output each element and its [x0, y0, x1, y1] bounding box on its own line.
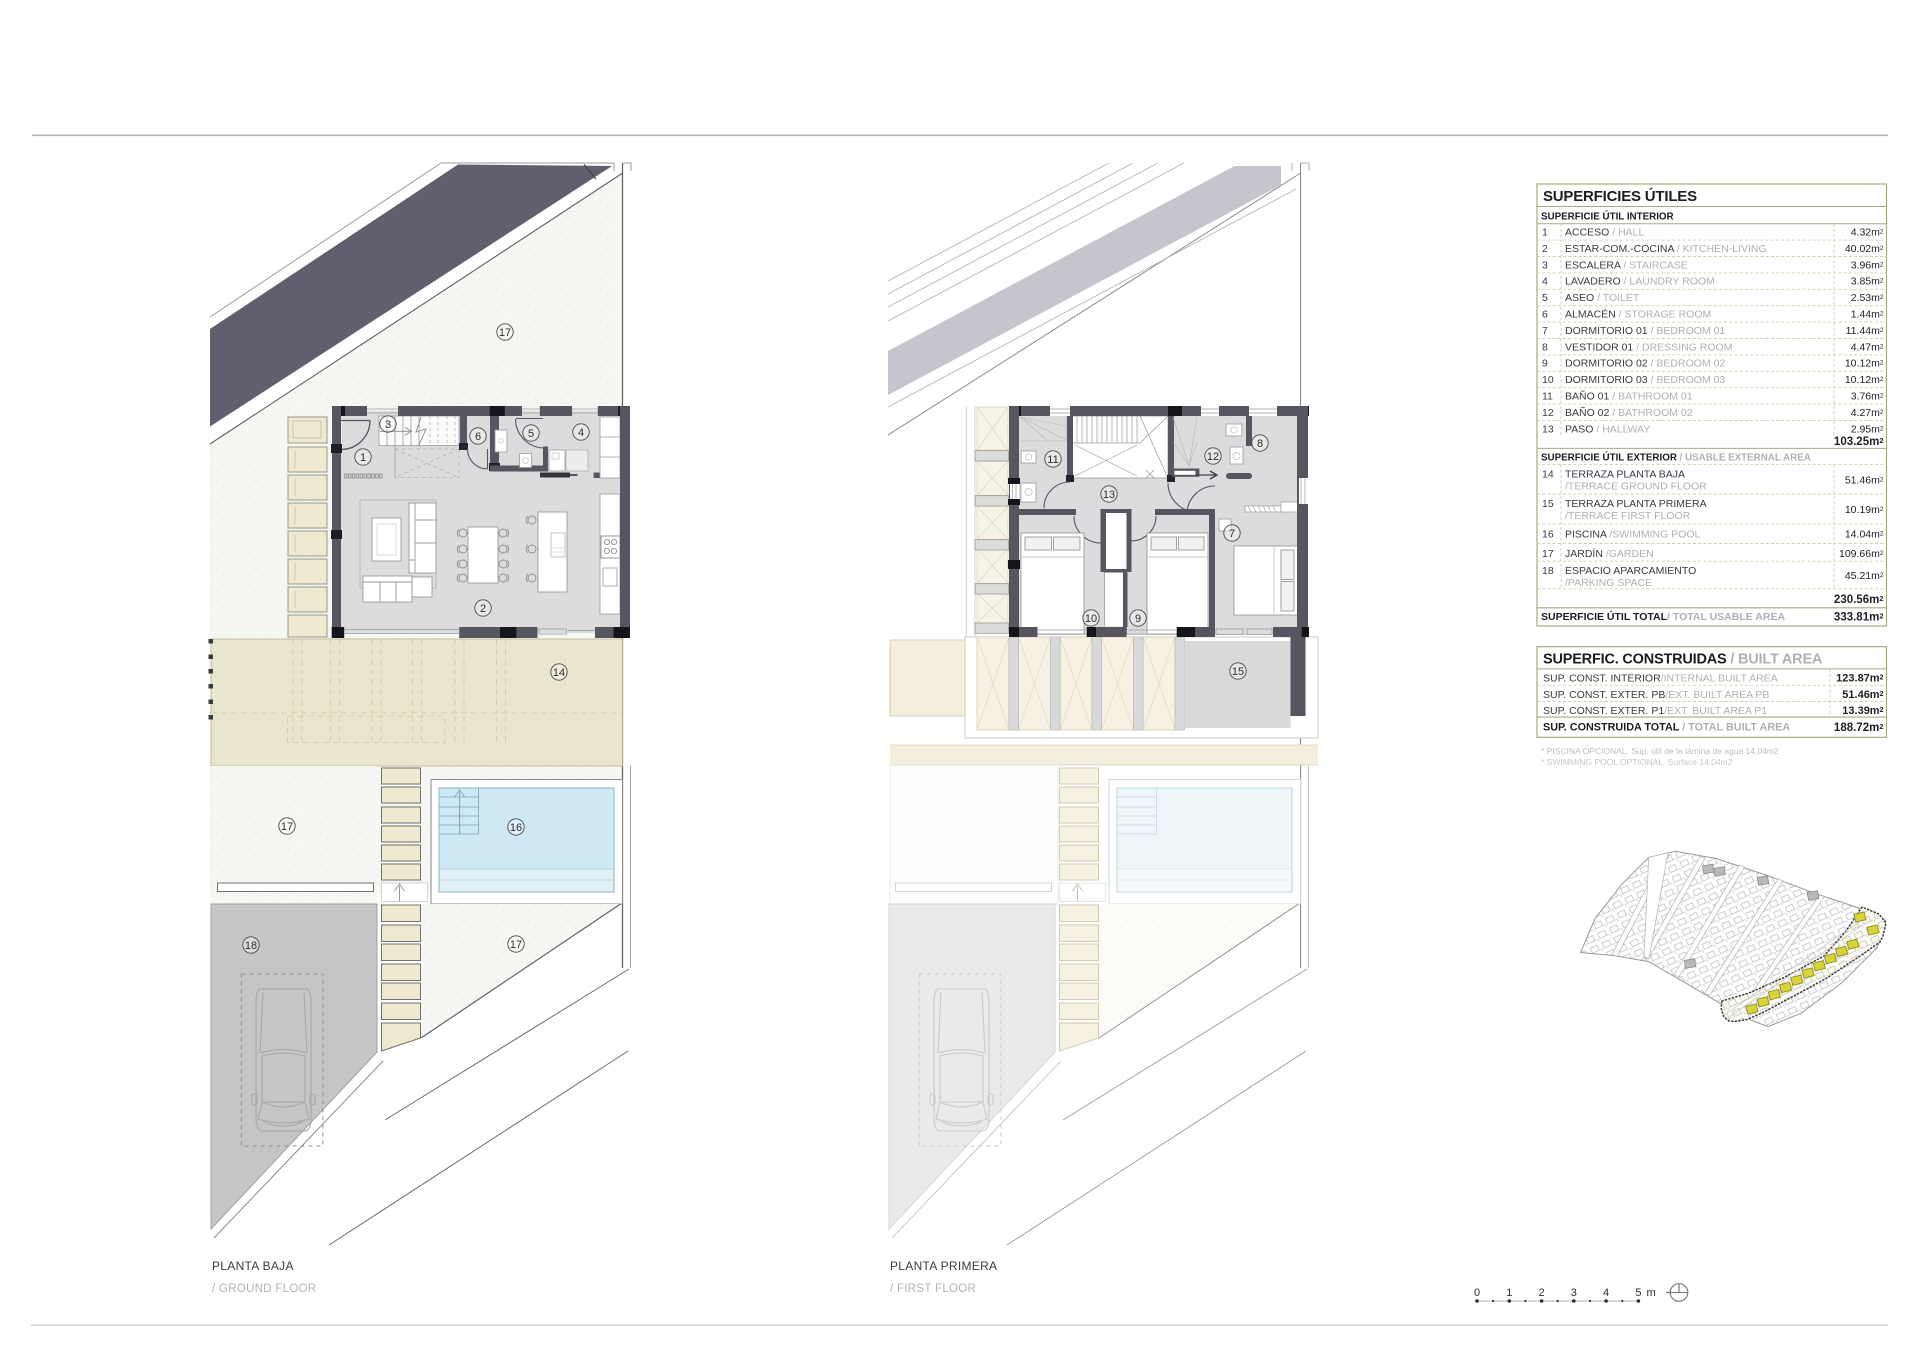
svg-text:ASEO / TOILET: ASEO / TOILET: [1565, 292, 1640, 304]
svg-text:7: 7: [1542, 325, 1548, 337]
svg-text:5: 5: [1542, 292, 1548, 304]
svg-text:4.47m2: 4.47m2: [1851, 341, 1884, 353]
svg-text:15: 15: [1232, 666, 1244, 678]
svg-text:7: 7: [1229, 528, 1235, 540]
svg-text:PLANTA PRIMERA: PLANTA PRIMERA: [890, 1259, 997, 1273]
svg-text:1: 1: [360, 452, 366, 464]
svg-text:6: 6: [1542, 309, 1548, 321]
svg-text:DORMITORIO 03 / BEDROOM 03: DORMITORIO 03 / BEDROOM 03: [1565, 374, 1725, 386]
svg-text:13: 13: [1542, 423, 1554, 435]
svg-text:PLANTA BAJA: PLANTA BAJA: [212, 1259, 294, 1273]
svg-text:SUP. CONST. EXTER. P1/EXT. BUI: SUP. CONST. EXTER. P1/EXT. BUILT AREA P1: [1543, 705, 1767, 717]
svg-text:230.56m2: 230.56m2: [1834, 594, 1884, 606]
svg-text:0: 0: [1474, 1287, 1480, 1299]
svg-text:SUP. CONSTRUIDA TOTAL / TOTAL: SUP. CONSTRUIDA TOTAL / TOTAL BUILT AREA: [1543, 722, 1790, 734]
svg-text:SUPERFICIE ÚTIL TOTAL/ TOTAL U: SUPERFICIE ÚTIL TOTAL/ TOTAL USABLE AREA: [1541, 610, 1785, 623]
svg-text:SUPERFICIE ÚTIL INTERIOR: SUPERFICIE ÚTIL INTERIOR: [1541, 211, 1674, 223]
svg-text:/TERRACE FIRST FLOOR: /TERRACE FIRST FLOOR: [1565, 510, 1691, 522]
svg-text:11.44m2: 11.44m2: [1846, 325, 1884, 337]
svg-text:17: 17: [510, 939, 522, 951]
svg-text:ESCALERA / STAIRCASE: ESCALERA / STAIRCASE: [1565, 259, 1688, 271]
svg-text:40.02m2: 40.02m2: [1845, 243, 1884, 255]
svg-text:10: 10: [1542, 374, 1554, 386]
svg-text:8: 8: [1257, 438, 1263, 450]
svg-text:2: 2: [1542, 243, 1548, 255]
svg-text:3.85m2: 3.85m2: [1851, 276, 1884, 288]
svg-text:11: 11: [1047, 454, 1058, 466]
svg-text:3.96m2: 3.96m2: [1851, 259, 1884, 271]
svg-text:BAÑO 01 / BATHROOM 01: BAÑO 01 / BATHROOM 01: [1565, 390, 1693, 403]
svg-text:TERRAZA PLANTA BAJA: TERRAZA PLANTA BAJA: [1565, 469, 1685, 481]
svg-text:10.12m2: 10.12m2: [1845, 374, 1884, 386]
svg-text:16: 16: [1542, 529, 1554, 541]
svg-text:* PISCINA OPCIONAL. Sup. útil: * PISCINA OPCIONAL. Sup. útil de la lámi…: [1541, 746, 1779, 756]
svg-text:4.27m2: 4.27m2: [1851, 407, 1884, 419]
svg-text:8: 8: [1542, 341, 1548, 353]
svg-text:10.12m2: 10.12m2: [1845, 358, 1884, 370]
svg-text:/TERRACE GROUND FLOOR: /TERRACE GROUND FLOOR: [1565, 481, 1707, 493]
svg-text:VESTIDOR 01 / DRESSING ROOM: VESTIDOR 01 / DRESSING ROOM: [1565, 341, 1732, 353]
svg-text:ALMACÉN / STORAGE ROOM: ALMACÉN / STORAGE ROOM: [1565, 308, 1711, 321]
svg-text:SUPERFIC. CONSTRUIDAS / BUILT: SUPERFIC. CONSTRUIDAS / BUILT AREA: [1543, 652, 1823, 668]
svg-text:PISCINA /SWIMMING POOL: PISCINA /SWIMMING POOL: [1565, 529, 1701, 541]
svg-text:12: 12: [1542, 407, 1554, 419]
svg-text:9: 9: [1135, 613, 1141, 625]
svg-text:14.04m2: 14.04m2: [1845, 529, 1884, 541]
svg-text:* SWIMMING POOL OPTIONAL. Surf: * SWIMMING POOL OPTIONAL. Surface 14.04m…: [1541, 757, 1733, 767]
svg-text:4: 4: [1603, 1287, 1609, 1299]
svg-text:SUPERFICIE ÚTIL EXTERIOR / USA: SUPERFICIE ÚTIL EXTERIOR / USABLE EXTERN…: [1541, 452, 1811, 464]
svg-text:13: 13: [1103, 489, 1115, 501]
svg-text:SUP. CONST. EXTER. PB/EXT. BUI: SUP. CONST. EXTER. PB/EXT. BUILT AREA PB: [1543, 689, 1769, 701]
svg-text:1: 1: [1506, 1287, 1512, 1299]
svg-text:5: 5: [528, 428, 534, 440]
svg-text:DORMITORIO 01 / BEDROOM 01: DORMITORIO 01 / BEDROOM 01: [1565, 325, 1725, 337]
svg-text:4: 4: [578, 427, 584, 439]
svg-text:PASO / HALLWAY: PASO / HALLWAY: [1565, 423, 1650, 435]
svg-text:3.76m2: 3.76m2: [1851, 391, 1884, 403]
svg-text:18: 18: [245, 940, 257, 952]
svg-text:51.46m2: 51.46m2: [1845, 474, 1884, 486]
svg-text:333.81m2: 333.81m2: [1834, 611, 1884, 623]
svg-text:1.44m2: 1.44m2: [1851, 309, 1884, 321]
svg-text:4.32m2: 4.32m2: [1851, 227, 1884, 239]
svg-text:17: 17: [499, 327, 511, 339]
svg-text:11: 11: [1542, 391, 1553, 403]
svg-text:BAÑO 02 / BATHROOM 02: BAÑO 02 / BATHROOM 02: [1565, 406, 1693, 419]
svg-text:ACCESO / HALL: ACCESO / HALL: [1565, 227, 1645, 239]
svg-text:18: 18: [1542, 565, 1554, 577]
svg-text:m: m: [1647, 1287, 1656, 1299]
svg-text:2: 2: [480, 603, 486, 615]
svg-text:10.19m2: 10.19m2: [1845, 504, 1884, 516]
svg-text:ESPACIO APARCAMIENTO: ESPACIO APARCAMIENTO: [1565, 565, 1696, 577]
svg-text:9: 9: [1542, 358, 1548, 370]
svg-text:17: 17: [281, 821, 293, 833]
svg-text:17: 17: [1542, 548, 1554, 560]
svg-text:/ FIRST FLOOR: / FIRST FLOOR: [890, 1283, 976, 1295]
svg-text:51.46m2: 51.46m2: [1842, 689, 1883, 701]
svg-text:2.95m2: 2.95m2: [1851, 423, 1884, 435]
svg-text:TERRAZA PLANTA PRIMERA: TERRAZA PLANTA PRIMERA: [1565, 498, 1707, 510]
svg-text:SUP. CONST. INTERIOR/INTERNAL: SUP. CONST. INTERIOR/INTERNAL BUILT AREA: [1543, 672, 1778, 684]
svg-text:16: 16: [510, 822, 522, 834]
svg-text:3: 3: [1571, 1287, 1577, 1299]
svg-text:6: 6: [475, 431, 481, 443]
svg-text:5: 5: [1635, 1287, 1641, 1299]
svg-text:15: 15: [1542, 498, 1554, 510]
svg-text:ESTAR-COM.-COCINA / KITCHEN-LI: ESTAR-COM.-COCINA / KITCHEN-LIVING: [1565, 243, 1767, 255]
svg-text:4: 4: [1542, 276, 1548, 288]
svg-text:JARDÍN /GARDEN: JARDÍN /GARDEN: [1565, 547, 1654, 560]
svg-text:45.21m2: 45.21m2: [1845, 570, 1884, 582]
svg-text:/ GROUND FLOOR: / GROUND FLOOR: [212, 1283, 317, 1295]
svg-text:14: 14: [1542, 469, 1554, 481]
svg-text:188.72m2: 188.72m2: [1834, 722, 1884, 734]
svg-text:3: 3: [1542, 259, 1548, 271]
svg-text:LAVADERO / LAUNDRY ROOM: LAVADERO / LAUNDRY ROOM: [1565, 276, 1715, 288]
svg-text:123.87m2: 123.87m2: [1836, 672, 1883, 684]
svg-text:13.39m2: 13.39m2: [1842, 705, 1883, 717]
svg-text:103.25m2: 103.25m2: [1834, 436, 1884, 448]
svg-text:/PARKING SPACE: /PARKING SPACE: [1565, 577, 1652, 589]
svg-text:2: 2: [1539, 1287, 1545, 1299]
svg-text:109.66m2: 109.66m2: [1839, 548, 1884, 560]
svg-text:SUPERFICIES ÚTILES: SUPERFICIES ÚTILES: [1543, 187, 1697, 205]
svg-text:2.53m2: 2.53m2: [1851, 292, 1884, 304]
svg-text:12: 12: [1207, 451, 1219, 463]
svg-text:10: 10: [1085, 613, 1097, 625]
svg-text:14: 14: [553, 667, 565, 679]
svg-text:1: 1: [1542, 227, 1548, 239]
svg-text:3: 3: [385, 419, 391, 431]
svg-text:DORMITORIO 02 / BEDROOM 02: DORMITORIO 02 / BEDROOM 02: [1565, 358, 1725, 370]
